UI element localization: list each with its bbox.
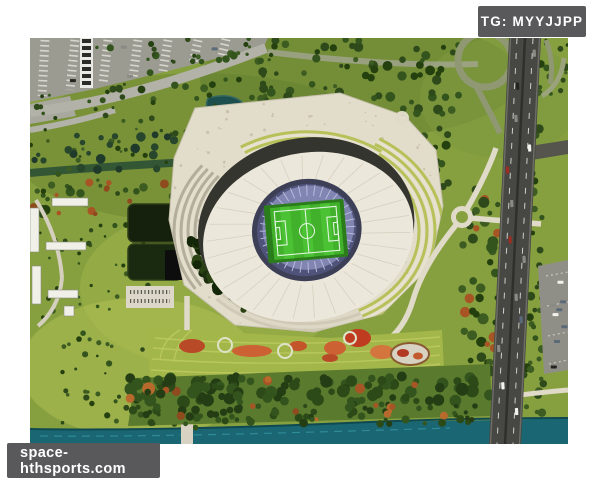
website-watermark: space-hthsports.com — [7, 443, 160, 478]
football-pitch — [264, 199, 349, 264]
telegram-watermark: TG: MYYJJPP — [478, 6, 586, 37]
small-parking — [126, 286, 174, 308]
telegram-handle-label: TG: MYYJJPP — [481, 14, 583, 29]
page: TG: MYYJJPP space-hthsports.com — [0, 0, 600, 480]
stadium-aerial-photo — [30, 38, 568, 444]
bridge — [181, 424, 193, 444]
website-url-label: space-hthsports.com — [20, 445, 160, 477]
garden-oval — [391, 343, 429, 365]
